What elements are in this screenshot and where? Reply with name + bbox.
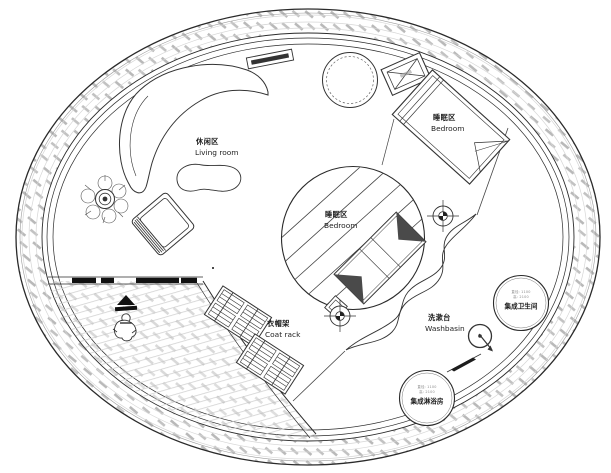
stray-dot	[212, 267, 214, 269]
floor-plan-canvas: 直径: 1100 高: 2100 集成卫生间 直径: 1100 高: 2100 …	[0, 0, 611, 473]
bathroom-pod-label: 集成卫生间	[504, 302, 538, 311]
round-table	[323, 53, 378, 108]
coat-rack-label-en: Coat rack	[265, 330, 301, 339]
shower-pod-spec-diameter: 直径: 1100	[417, 384, 436, 389]
bathroom-pod-spec-height: 高: 2100	[513, 294, 529, 299]
bedroom-main-label-zh: 睡眠区	[433, 113, 456, 122]
bedroom-center-label-zh: 睡眠区	[325, 210, 348, 219]
bathroom-pod-spec-diameter: 直径: 1100	[511, 289, 530, 294]
coffee-table	[177, 164, 241, 191]
living-room-label-en: Living room	[195, 148, 238, 157]
washbasin-label-en: Washbasin	[425, 324, 465, 333]
floor-plan-drawing: 直径: 1100 高: 2100 集成卫生间 直径: 1100 高: 2100 …	[0, 0, 611, 473]
bedroom-center-label-en: Bedroom	[324, 221, 357, 230]
washbasin-label-zh: 洗漱台	[428, 313, 451, 322]
coat-rack-label-zh: 衣帽架	[267, 319, 290, 328]
bathroom-pod: 直径: 1100 高: 2100 集成卫生间	[494, 276, 549, 331]
living-room-label-zh: 休闲区	[195, 137, 219, 146]
shower-pod-spec-height: 高: 2100	[419, 389, 435, 394]
shower-pod: 直径: 1100 高: 2100 集成淋浴房	[400, 371, 455, 426]
bedroom-main-label-en: Bedroom	[431, 124, 464, 133]
shower-pod-label: 集成淋浴房	[410, 397, 444, 406]
